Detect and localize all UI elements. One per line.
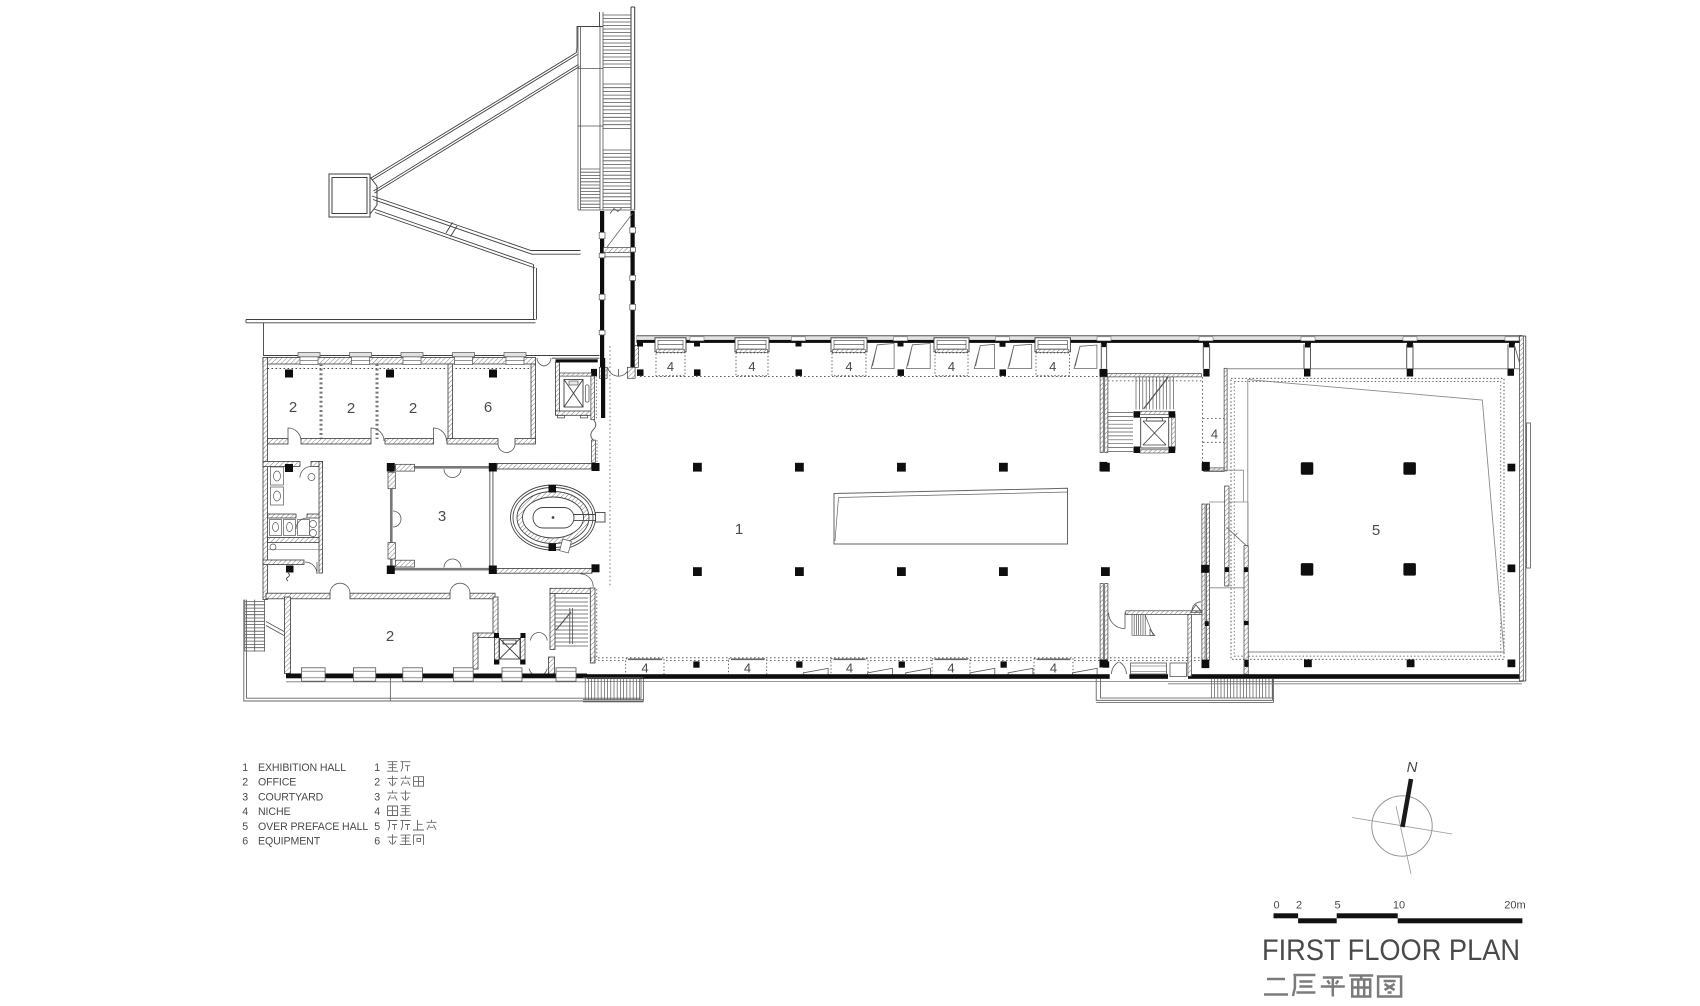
svg-text:5: 5 [1372, 522, 1380, 539]
svg-text:COURTYARD: COURTYARD [258, 791, 324, 803]
svg-text:4: 4 [1049, 359, 1056, 374]
svg-text:1: 1 [374, 762, 380, 774]
svg-text:2: 2 [386, 628, 394, 645]
svg-text:N: N [1407, 759, 1418, 776]
svg-text:2: 2 [242, 777, 248, 789]
svg-text:2: 2 [289, 399, 297, 416]
svg-text:6: 6 [484, 399, 492, 416]
svg-text:2: 2 [1296, 900, 1302, 912]
svg-text:4: 4 [744, 661, 751, 676]
svg-text:0: 0 [1273, 900, 1279, 912]
svg-text:5: 5 [242, 821, 248, 833]
svg-text:4: 4 [667, 359, 674, 374]
svg-text:4: 4 [948, 359, 955, 374]
svg-text:6: 6 [242, 835, 248, 847]
svg-text:4: 4 [748, 359, 755, 374]
svg-text:2: 2 [374, 777, 380, 789]
svg-text:4: 4 [846, 661, 853, 676]
svg-text:3: 3 [438, 508, 446, 525]
svg-text:4: 4 [242, 806, 248, 818]
svg-text:4: 4 [947, 661, 954, 676]
svg-text:4: 4 [641, 661, 648, 676]
svg-text:1: 1 [242, 762, 248, 774]
svg-text:5: 5 [374, 821, 380, 833]
svg-text:FIRST FLOOR PLAN: FIRST FLOOR PLAN [1262, 934, 1520, 967]
svg-text:OVER PREFACE HALL: OVER PREFACE HALL [258, 821, 368, 833]
svg-text:EQUIPMENT: EQUIPMENT [258, 835, 321, 847]
svg-text:OFFICE: OFFICE [258, 777, 296, 789]
svg-text:1: 1 [735, 521, 743, 538]
svg-text:3: 3 [242, 791, 248, 803]
svg-text:20m: 20m [1504, 900, 1525, 912]
svg-text:5: 5 [1334, 900, 1340, 912]
svg-text:3: 3 [374, 791, 380, 803]
svg-text:2: 2 [409, 400, 417, 417]
svg-text:6: 6 [374, 835, 380, 847]
svg-text:4: 4 [1050, 661, 1057, 676]
svg-text:4: 4 [374, 806, 380, 818]
svg-text:EXHIBITION HALL: EXHIBITION HALL [258, 762, 346, 774]
svg-text:10: 10 [1393, 900, 1405, 912]
svg-text:4: 4 [1211, 427, 1218, 442]
svg-text:2: 2 [347, 400, 355, 417]
svg-text:NICHE: NICHE [258, 806, 290, 818]
svg-text:4: 4 [845, 359, 852, 374]
